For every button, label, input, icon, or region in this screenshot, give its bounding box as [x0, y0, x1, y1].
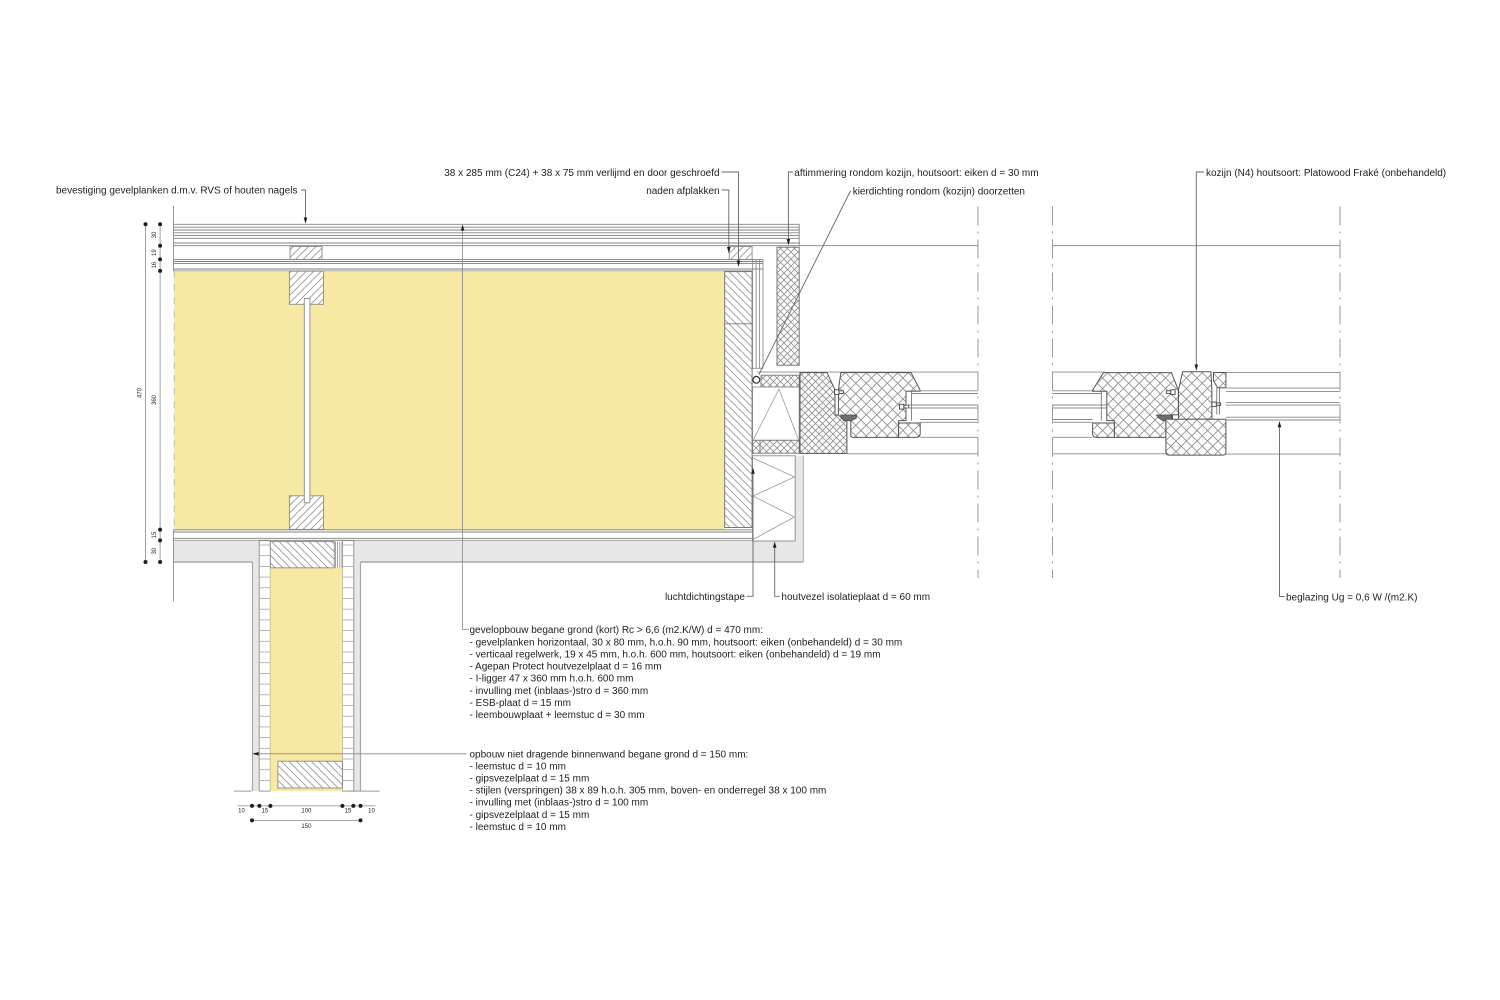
svg-text:aftimmering rondom kozijn, hou: aftimmering rondom kozijn, houtsoort: ei…	[794, 168, 1038, 179]
svg-text:- gipsvezelplaat d = 15 mm: - gipsvezelplaat d = 15 mm	[470, 810, 590, 821]
svg-text:- Agepan Protect houtvezelplaa: - Agepan Protect houtvezelplaat d = 16 m…	[470, 662, 662, 673]
svg-text:gevelopbouw begane grond (kort: gevelopbouw begane grond (kort) Rc > 6,6…	[470, 625, 763, 636]
svg-text:- I-ligger 47 x 360 mm h.o.h.: - I-ligger 47 x 360 mm h.o.h. 600 mm	[470, 674, 634, 685]
svg-text:470: 470	[138, 387, 144, 398]
svg-text:- stijlen (verspringen) 38 x 8: - stijlen (verspringen) 38 x 89 h.o.h. 3…	[470, 786, 827, 797]
svg-text:- leembouwplaat + leemstuc d =: - leembouwplaat + leemstuc d = 30 mm	[470, 710, 645, 721]
svg-text:- gevelplanken horizontaal, 30: - gevelplanken horizontaal, 30 x 80 mm, …	[470, 637, 903, 648]
svg-text:150: 150	[301, 824, 312, 830]
svg-text:beglazing Ug = 0,6 W /(m2.K): beglazing Ug = 0,6 W /(m2.K)	[1286, 593, 1417, 604]
svg-text:- leemstuc d = 10 mm: - leemstuc d = 10 mm	[470, 761, 566, 772]
svg-text:15: 15	[152, 531, 158, 538]
svg-text:30: 30	[152, 547, 158, 554]
svg-text:opbouw niet dragende binnenwan: opbouw niet dragende binnenwand begane g…	[470, 749, 749, 760]
svg-text:kozijn (N4) houtsoort: Platowo: kozijn (N4) houtsoort: Platowood Fraké (…	[1206, 168, 1446, 179]
svg-text:10: 10	[238, 809, 245, 815]
svg-text:38 x 285 mm (C24) + 38 x 75 mm: 38 x 285 mm (C24) + 38 x 75 mm verlijmd …	[444, 168, 719, 179]
svg-text:360: 360	[152, 394, 158, 405]
svg-text:bevestiging gevelplanken d.m.v: bevestiging gevelplanken d.m.v. RVS of h…	[56, 186, 297, 197]
svg-text:- leemstuc d = 10 mm: - leemstuc d = 10 mm	[470, 822, 566, 833]
svg-text:luchtdichtingstape: luchtdichtingstape	[665, 592, 745, 603]
svg-text:- invulling met (inblaas-)stro: - invulling met (inblaas-)stro d = 360 m…	[470, 686, 649, 697]
svg-text:- ESB-plaat d = 15 mm: - ESB-plaat d = 15 mm	[470, 698, 571, 709]
svg-text:15: 15	[262, 809, 269, 815]
svg-text:16: 16	[152, 261, 158, 268]
svg-text:30: 30	[152, 231, 158, 238]
svg-text:- verticaal regelwerk, 19 x 45: - verticaal regelwerk, 19 x 45 mm, h.o.h…	[470, 649, 881, 660]
svg-text:kierdichting rondom (kozijn) d: kierdichting rondom (kozijn) doorzetten	[853, 187, 1025, 198]
svg-text:15: 15	[345, 809, 352, 815]
svg-text:19: 19	[152, 249, 158, 256]
svg-text:10: 10	[368, 809, 375, 815]
svg-text:houtvezel isolatieplaat d = 60: houtvezel isolatieplaat d = 60 mm	[781, 592, 930, 603]
svg-text:naden afplakken: naden afplakken	[646, 186, 719, 197]
svg-text:- gipsvezelplaat d = 15 mm: - gipsvezelplaat d = 15 mm	[470, 774, 590, 785]
svg-text:- invulling met (inblaas-)stro: - invulling met (inblaas-)stro d = 100 m…	[470, 798, 649, 809]
svg-text:100: 100	[301, 809, 312, 815]
